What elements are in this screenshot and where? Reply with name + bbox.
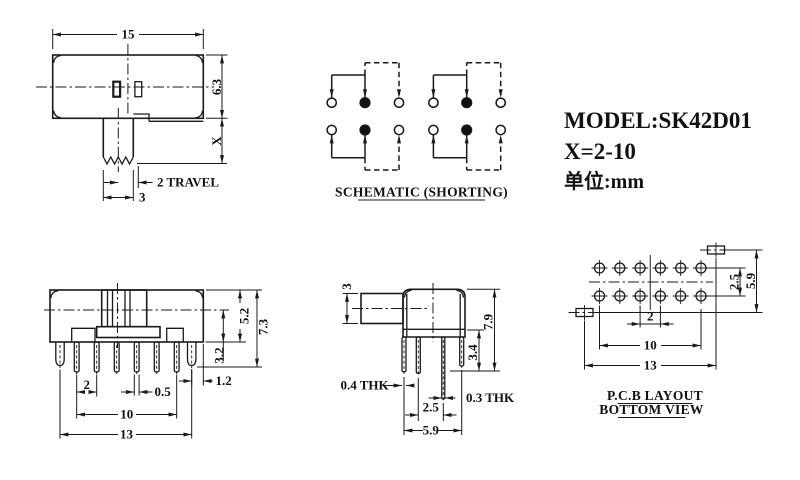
front-view-actuator — [97, 290, 160, 338]
dim-front-width: 13 — [120, 426, 134, 441]
dim-top-height: 6.3 — [209, 78, 224, 95]
dim-side-total: 7.9 — [481, 313, 496, 330]
title-block: MODEL:SK42D01 X=2-10 单位:mm — [564, 108, 752, 193]
model-number: MODEL:SK42D01 — [564, 108, 752, 133]
top-view-stem — [103, 118, 133, 164]
front-view-dimensions: 5.2 3.2 7.3 1.2 2 0.5 10 13 — [60, 290, 271, 441]
schematic-pole-group-2 — [429, 63, 506, 170]
side-view-actuator — [352, 294, 428, 324]
schematic-caption: SCHEMATIC (SHORTING) — [335, 185, 508, 200]
front-view-body-outline — [50, 290, 203, 342]
front-view: 5.2 3.2 7.3 1.2 2 0.5 10 13 — [44, 283, 271, 441]
dim-side-depth: 5.9 — [423, 423, 440, 438]
x-range: X=2-10 — [564, 139, 636, 164]
dim-front-span: 10 — [120, 406, 133, 421]
dim-front-pin-width: 0.5 — [155, 384, 172, 399]
dim-pcb-row-pitch: 2.5 — [727, 273, 742, 290]
dim-top-travel: 2 TRAVEL — [157, 175, 219, 190]
dim-front-body-height: 5.2 — [237, 308, 252, 324]
side-view: 3 7.9 3.4 0.4 THK 0.3 THK 2.5 5.9 — [339, 283, 515, 438]
pcb-caption-line2: BOTTOM VIEW — [599, 402, 704, 417]
pcb-caption-line1: P.C.B LAYOUT — [607, 388, 703, 403]
pcb-holes — [589, 255, 713, 310]
top-view-centerlines — [36, 44, 214, 172]
dim-top-width: 15 — [122, 27, 136, 42]
dim-pcb-width: 13 — [644, 357, 658, 372]
side-view-dimensions: 3 7.9 3.4 0.4 THK 0.3 THK 2.5 5.9 — [339, 283, 515, 438]
schematic-pole-group-1 — [327, 63, 404, 170]
dim-pcb-height: 5.9 — [743, 272, 758, 289]
dim-side-pin: 3.4 — [465, 344, 480, 361]
dim-front-leg-edge: 1.2 — [216, 373, 232, 388]
side-view-pins — [402, 337, 464, 401]
dim-top-stem-width: 3 — [139, 190, 146, 205]
dim-pcb-pitch: 2 — [647, 309, 654, 324]
units-label: 单位:mm — [564, 169, 644, 193]
dim-front-pin-length: 3.2 — [212, 347, 227, 363]
dim-side-actuator-thickness: 0.4 THK — [341, 378, 390, 393]
schematic-view: SCHEMATIC (SHORTING) — [327, 63, 508, 200]
drawing-canvas: 15 6.3 X 2 TRAVEL 3 — [0, 0, 800, 480]
dim-side-row-pitch: 2.5 — [423, 400, 440, 415]
dim-front-pitch: 2 — [83, 377, 90, 392]
side-view-body-outline — [403, 283, 465, 342]
pcb-view: 2.5 5.9 2 10 13 P.C.B LAYOUT BOTTOM VIEW — [569, 243, 763, 418]
dim-top-stem-length: X — [209, 136, 224, 146]
dim-pcb-span: 10 — [644, 337, 657, 352]
technical-drawing: 15 6.3 X 2 TRAVEL 3 — [0, 0, 800, 480]
front-view-pins — [74, 342, 179, 374]
pcb-caption: P.C.B LAYOUT BOTTOM VIEW — [599, 388, 704, 418]
dim-front-total-height: 7.3 — [256, 318, 271, 335]
dim-side-knob: 3 — [339, 283, 354, 290]
top-view: 15 6.3 X 2 TRAVEL 3 — [36, 27, 228, 205]
dim-side-pin-thickness: 0.3 THK — [466, 390, 515, 405]
